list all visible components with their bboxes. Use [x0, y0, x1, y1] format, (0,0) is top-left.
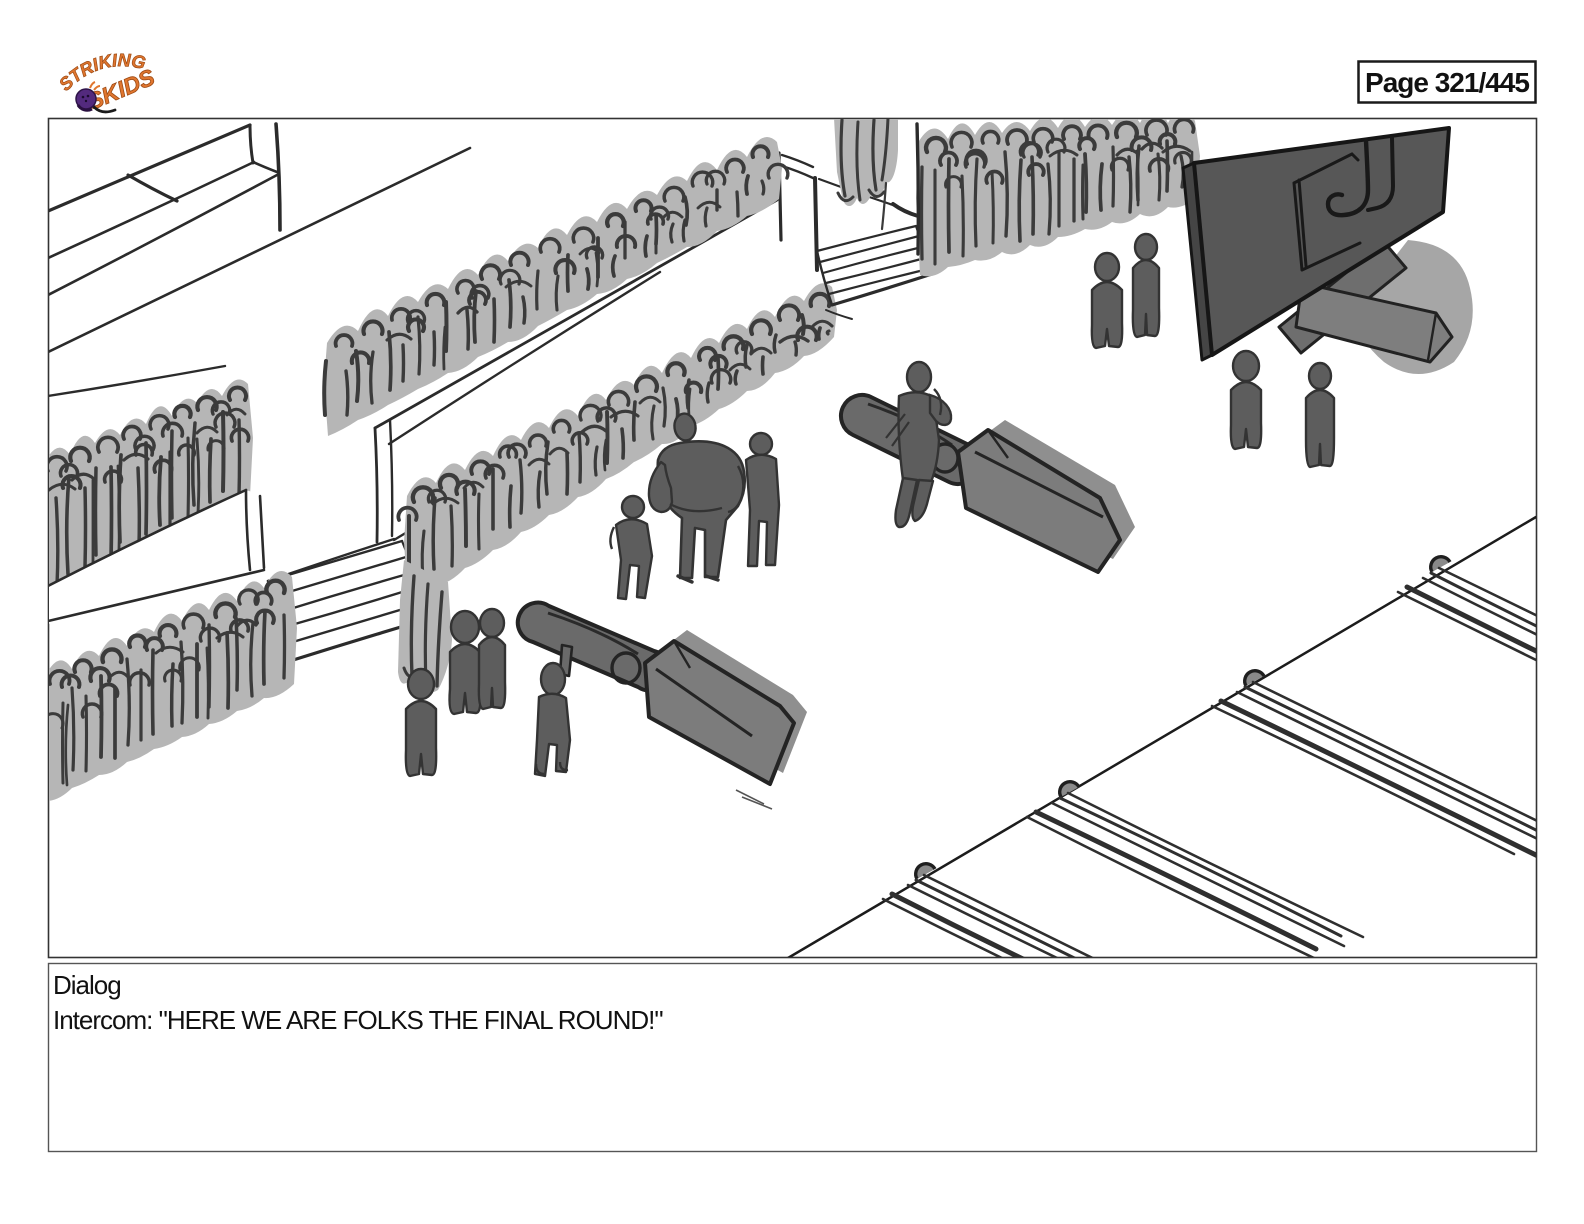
- svg-text:Page 321/445: Page 321/445: [1365, 67, 1529, 98]
- svg-text:Dialog: Dialog: [53, 970, 121, 1000]
- svg-text:Intercom: "HERE WE ARE FOLKS T: Intercom: "HERE WE ARE FOLKS THE FINAL R…: [53, 1005, 663, 1035]
